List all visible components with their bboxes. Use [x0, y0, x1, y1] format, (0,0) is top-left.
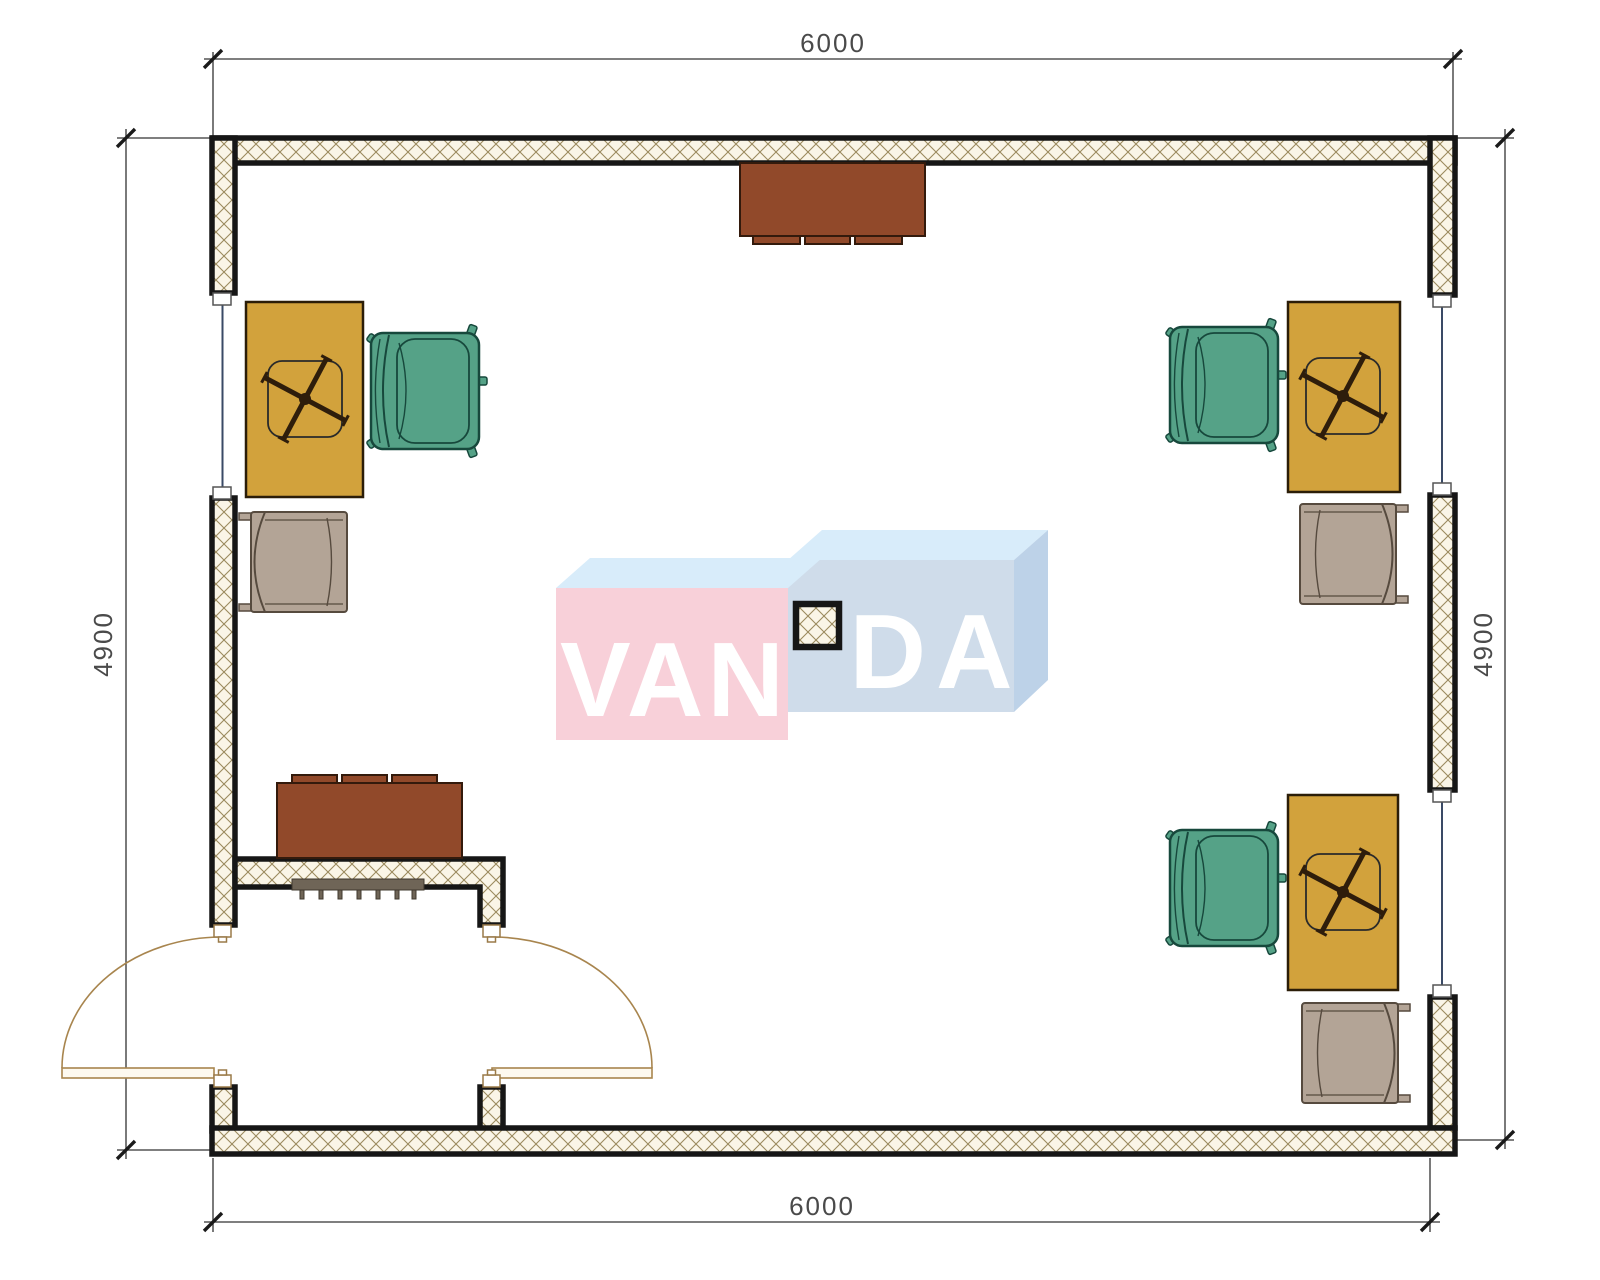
door-leaves: [62, 1068, 652, 1078]
dimension-label-left: 4900: [88, 611, 118, 677]
wall-right-middle: [1430, 495, 1455, 790]
door-right-swing-arc: [492, 937, 652, 1068]
wall-left-middle: [212, 498, 235, 925]
dimension-label-bottom: 6000: [789, 1191, 855, 1221]
wall-left-upper: [212, 138, 235, 293]
door-swing-arcs: [62, 937, 652, 1068]
center-column: [796, 604, 839, 647]
armchair-left: [366, 324, 487, 458]
logo-text-da: DA: [849, 593, 1022, 711]
dimension-label-top: 6000: [800, 28, 866, 58]
door-frame-marks: [214, 925, 500, 1087]
cabinet-vestibule: [277, 775, 462, 858]
entrance-double-door: [62, 925, 652, 1087]
wall-right-lower: [1430, 997, 1455, 1128]
visitor-chair-left: [239, 512, 347, 612]
wall-right-upper: [1430, 138, 1455, 295]
door-right-leaf: [492, 1068, 652, 1078]
door-left-swing-arc: [62, 937, 222, 1068]
wall-bottom: [212, 1128, 1455, 1154]
visitor-chair-right-top: [1300, 504, 1408, 604]
door-left-leaf: [62, 1068, 214, 1078]
cabinet-top: [740, 163, 925, 244]
wall-top: [213, 138, 1455, 163]
armchair-right-bottom: [1165, 821, 1286, 955]
wall-right-door-stub: [480, 1087, 503, 1131]
visitor-chair-right-bottom: [1302, 1003, 1410, 1103]
logo-blue-top-face: [788, 530, 1048, 560]
wall-vestibule-interior: [235, 859, 503, 925]
floor-plan-page: 6000 6000 4900 4900 VAN DA: [0, 0, 1600, 1280]
armchair-right-top: [1165, 318, 1286, 452]
logo-pink-top-face: [556, 558, 822, 588]
floor-plan-drawing: 6000 6000 4900 4900 VAN DA: [0, 0, 1600, 1280]
dimension-label-right: 4900: [1468, 611, 1498, 677]
radiator-grille: [292, 879, 424, 899]
wall-left-door-stub: [212, 1087, 235, 1131]
logo-text-van: VAN: [560, 621, 788, 739]
